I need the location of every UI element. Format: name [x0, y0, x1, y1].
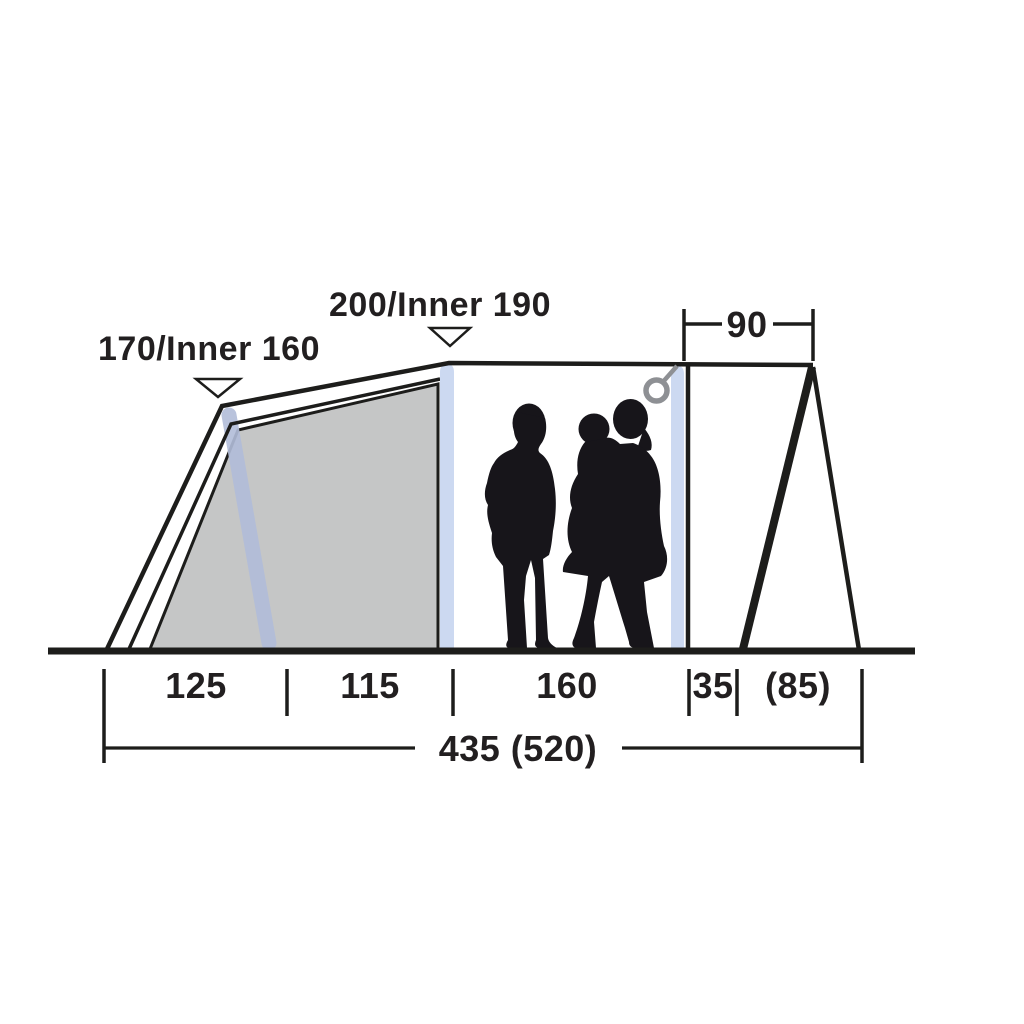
guy-rope	[813, 367, 859, 650]
peak-height-label-left: 170/Inner 160	[98, 330, 320, 368]
guy-rope-ring-icon	[646, 380, 667, 401]
pointer-triangle-icon-left	[196, 379, 240, 397]
family-silhouette	[485, 399, 667, 648]
inner-tent-panel	[150, 384, 438, 649]
dimension-90: 90	[684, 304, 813, 361]
mid-vertical-pole	[440, 364, 454, 651]
floor-segment-label-1: 125	[165, 665, 227, 706]
adult1-body	[485, 412, 557, 648]
adult2-body	[563, 438, 667, 648]
front-vertical-pole	[671, 366, 684, 651]
total-length-dimension: 435 (520)	[104, 728, 862, 769]
pointer-triangle-icon-mid	[430, 328, 470, 346]
floor-segment-label-3: 160	[536, 665, 598, 706]
floor-segment-label-2: 115	[340, 665, 400, 706]
diagram-canvas: 170/Inner 160 200/Inner 190 90 125 115 1…	[0, 0, 1024, 1024]
tent-dimension-diagram: 170/Inner 160 200/Inner 190 90 125 115 1…	[0, 0, 1024, 1024]
total-length-label: 435 (520)	[439, 728, 598, 769]
floor-segment-label-4: 35	[692, 665, 733, 706]
dim-90-label: 90	[726, 304, 767, 345]
floor-segment-label-5: (85)	[765, 665, 831, 706]
canopy-pole	[743, 367, 812, 649]
peak-height-label-mid: 200/Inner 190	[329, 286, 551, 324]
